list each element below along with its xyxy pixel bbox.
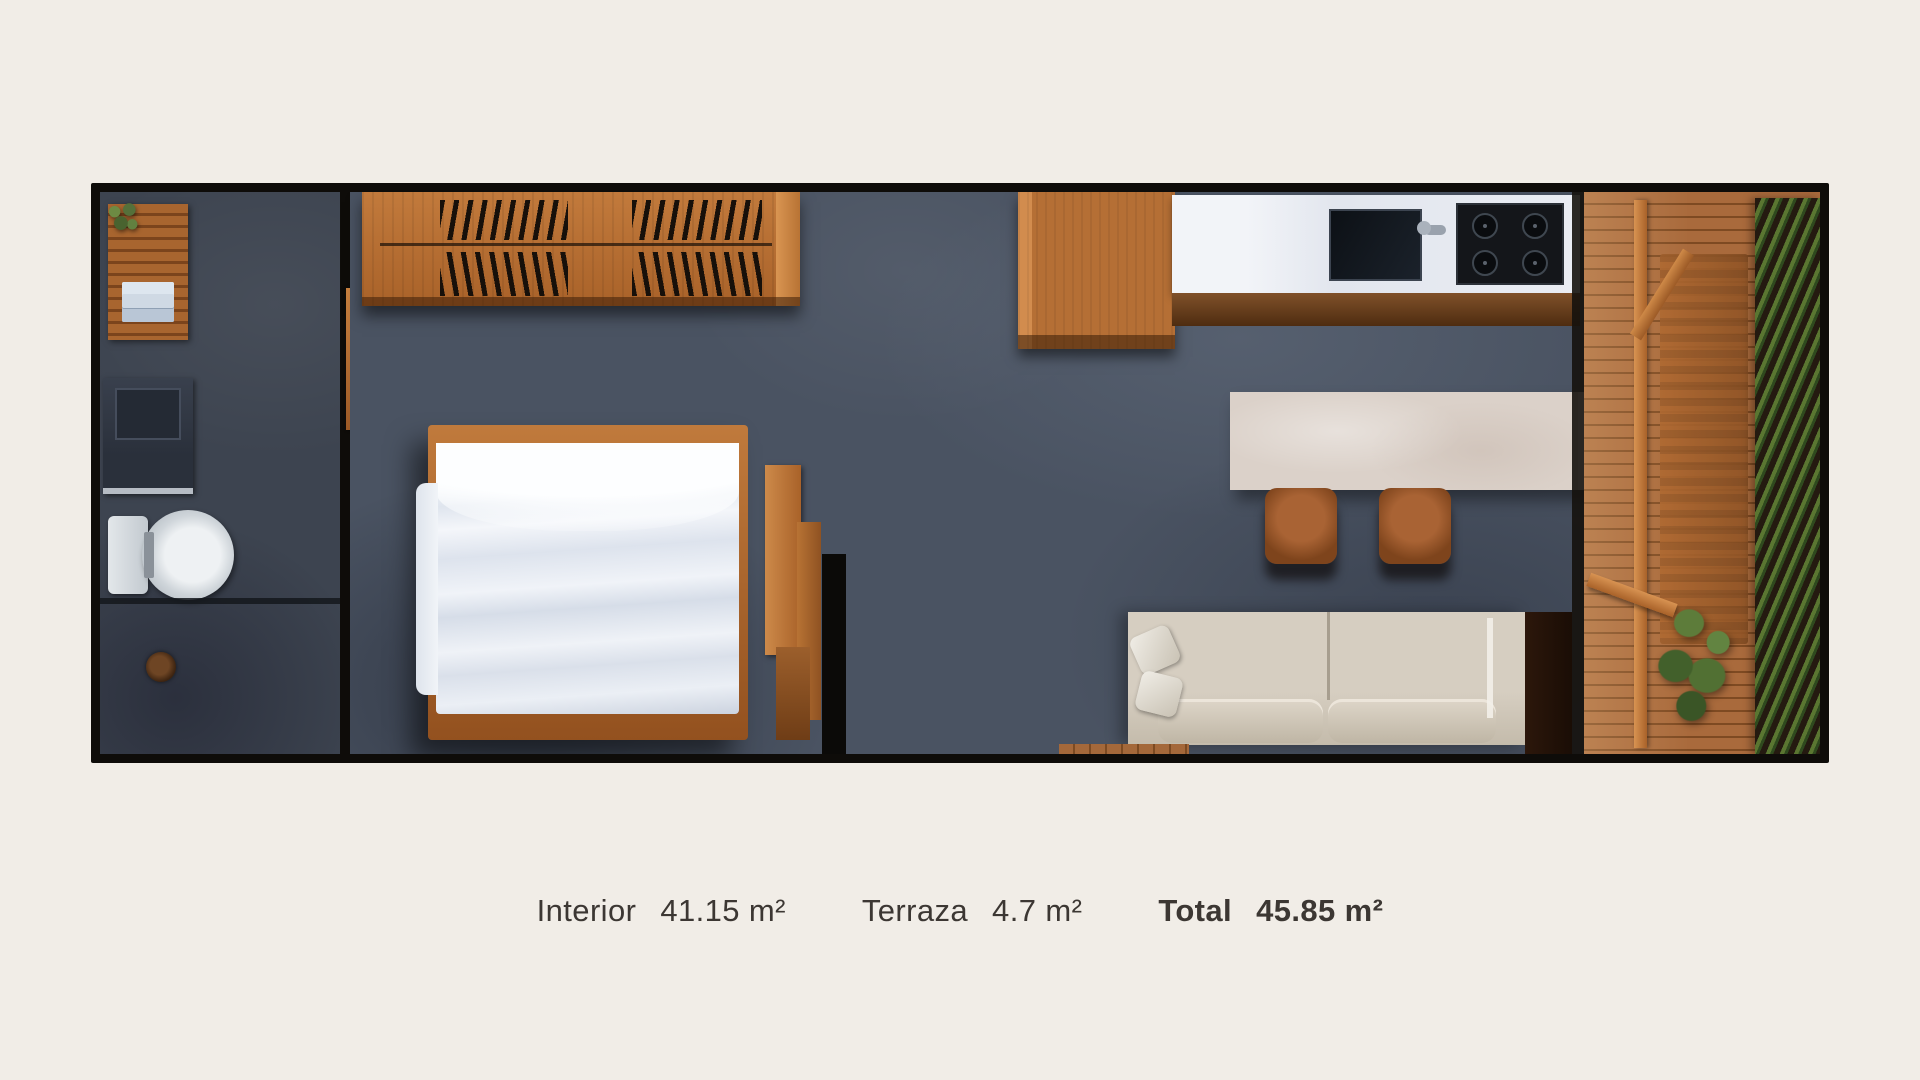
sofa-pillow	[1128, 623, 1183, 677]
hanging-clothes	[632, 200, 762, 240]
nightstand	[765, 465, 801, 655]
interior-area: Interior 41.15 m²	[537, 893, 786, 929]
wardrobe-side-panel	[776, 192, 800, 306]
terraza-value: 4.7 m²	[992, 893, 1082, 929]
wardrobe-edge	[362, 297, 800, 306]
dining-chair	[1379, 488, 1451, 564]
terrace-area	[1584, 192, 1820, 754]
total-value: 45.85 m²	[1256, 893, 1383, 929]
counter-base	[1172, 293, 1580, 326]
sofa-highlight	[1487, 618, 1493, 718]
interior-label: Interior	[537, 893, 637, 929]
interior-value: 41.15 m²	[660, 893, 786, 929]
kitchen-sink	[1329, 209, 1422, 281]
terrace-door-shadow	[1525, 612, 1572, 754]
bathroom-vanity	[103, 378, 193, 494]
terrace-window-wall	[1572, 192, 1584, 754]
hanging-clothes	[440, 252, 568, 296]
faucet-icon	[1424, 225, 1446, 235]
terrace-area-caption: Terraza 4.7 m²	[862, 893, 1082, 929]
dining-chair	[1265, 488, 1337, 564]
wardrobe	[362, 192, 800, 306]
floorplan-image	[91, 183, 1829, 763]
bed-pillows	[436, 443, 739, 531]
wall-segment	[822, 554, 846, 754]
total-area: Total 45.85 m²	[1158, 893, 1383, 929]
sofa-seam	[1327, 612, 1330, 700]
sofa-cushion	[1158, 699, 1323, 743]
stove-burner	[1472, 213, 1498, 239]
lounge-chair	[1660, 254, 1748, 644]
shower-drain	[146, 652, 176, 682]
nightstand	[776, 647, 810, 740]
wardrobe-rod	[380, 243, 772, 246]
towels	[122, 282, 174, 322]
stove-burner	[1522, 213, 1548, 239]
entry-step	[1059, 744, 1189, 754]
toilet-seat-hinge	[144, 532, 154, 578]
shower-partition	[100, 598, 350, 604]
kitchen-cabinet	[1018, 192, 1175, 349]
louver-screen	[1755, 198, 1820, 754]
floorplan-canvas	[100, 192, 1820, 754]
toilet-bowl	[142, 510, 234, 600]
bed	[428, 425, 748, 740]
bed-duvet-fold	[416, 483, 438, 695]
area-caption: Interior 41.15 m² Terraza 4.7 m² Total 4…	[0, 893, 1920, 929]
kitchen-countertop	[1172, 195, 1580, 293]
hanging-clothes	[440, 200, 568, 240]
washbasin	[115, 388, 181, 440]
sofa-cushion	[1328, 699, 1496, 743]
terraza-label: Terraza	[862, 893, 968, 929]
stove-burner	[1522, 250, 1548, 276]
bathroom-area	[100, 192, 350, 754]
total-label: Total	[1158, 893, 1232, 929]
hanging-clothes	[632, 252, 762, 296]
sofa	[1128, 612, 1525, 745]
dining-island-table	[1230, 392, 1588, 490]
cabinet-edge	[1018, 335, 1175, 349]
plant-icon	[102, 197, 144, 239]
stove	[1456, 203, 1564, 285]
terrace-plant	[1642, 590, 1754, 728]
stove-burner	[1472, 250, 1498, 276]
